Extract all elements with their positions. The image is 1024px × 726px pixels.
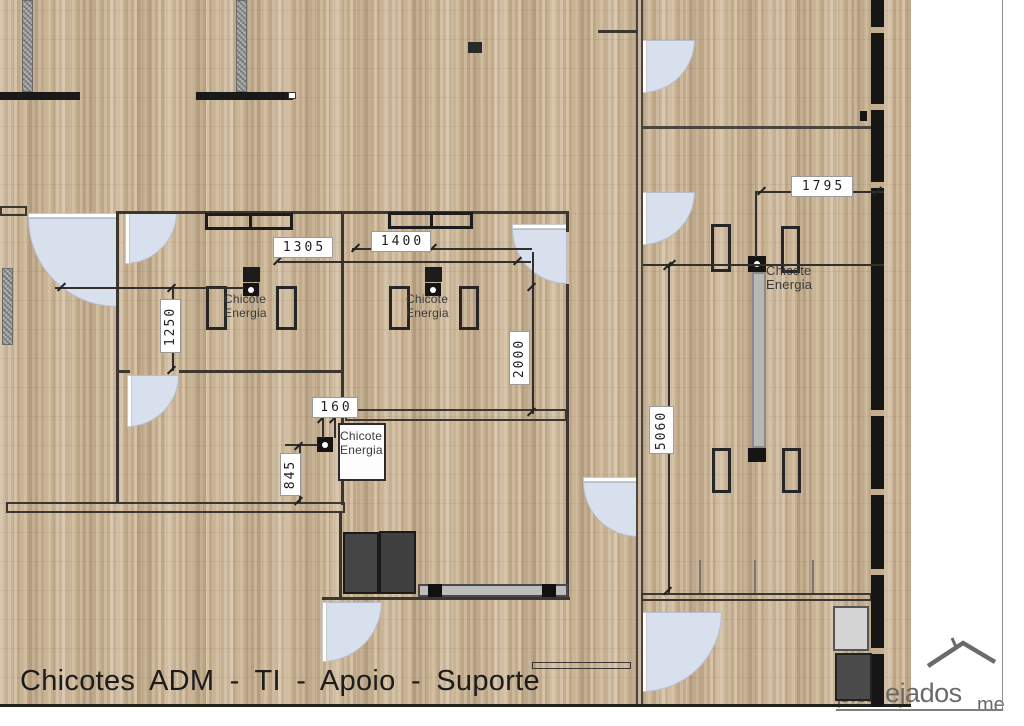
power-label-line: Chicote bbox=[406, 292, 449, 306]
watermark-underline bbox=[836, 709, 1003, 711]
cabinet-dark bbox=[835, 653, 872, 701]
dimension-line bbox=[55, 287, 244, 289]
junction-box bbox=[425, 267, 442, 282]
wall-top-stub bbox=[598, 30, 638, 33]
dimension-value: 1305 bbox=[280, 240, 326, 255]
wall-divider-line-a bbox=[636, 0, 638, 707]
floor-bottom-edge bbox=[0, 704, 911, 707]
dimension-label: 2000 bbox=[509, 331, 530, 385]
counter-outlet bbox=[428, 584, 442, 597]
dimension-value: 1400 bbox=[378, 234, 424, 249]
column bbox=[22, 0, 33, 92]
dimension-line bbox=[532, 252, 534, 414]
dimension-line bbox=[643, 264, 884, 266]
wall-room1-bottom-a bbox=[116, 370, 130, 373]
appliance bbox=[833, 606, 869, 651]
wall-stub-left bbox=[0, 206, 27, 216]
wardrobe bbox=[379, 531, 416, 594]
wall-marker bbox=[860, 111, 867, 121]
dimension-label: 1305 bbox=[273, 237, 333, 258]
dimension-label: 845 bbox=[280, 453, 301, 496]
power-label-line: Energia bbox=[340, 443, 383, 457]
desk bbox=[459, 286, 479, 330]
power-label: ChicoteEnergia bbox=[340, 429, 383, 457]
dimension-label: 1250 bbox=[160, 299, 181, 353]
chimney-icon bbox=[952, 638, 956, 647]
power-label: ChicoteEnergia bbox=[406, 292, 449, 320]
power-label-line: Chicote bbox=[766, 264, 812, 278]
power-label: ChicoteEnergia bbox=[766, 264, 812, 292]
power-label-line: Energia bbox=[766, 278, 812, 292]
wall-bar-top-mid bbox=[196, 92, 293, 100]
window-mullion bbox=[699, 560, 701, 594]
door-leaf bbox=[127, 375, 132, 427]
door-leaf bbox=[583, 477, 638, 482]
dimension-label: 160 bbox=[312, 397, 358, 418]
power-label-line: Chicote bbox=[340, 429, 383, 443]
outlet-dot bbox=[322, 442, 328, 448]
house-roof-icon bbox=[928, 643, 995, 666]
desk bbox=[782, 448, 801, 493]
wall-black-gap bbox=[871, 648, 884, 654]
page-border-right bbox=[1002, 0, 1003, 711]
power-label-line: Energia bbox=[224, 306, 267, 320]
door-leaf bbox=[125, 212, 130, 264]
dimension-value: 5060 bbox=[654, 410, 669, 449]
counter-low bbox=[532, 662, 631, 669]
floor-marker bbox=[468, 42, 482, 53]
wall-black-gap bbox=[871, 27, 884, 33]
power-label: ChicoteEnergia bbox=[224, 292, 267, 320]
wall-right-corridor bbox=[641, 126, 872, 129]
wall-bar-top-left bbox=[0, 92, 80, 100]
wall-black-gap bbox=[871, 489, 884, 495]
tray-endcap bbox=[748, 448, 766, 462]
window-mullion bbox=[812, 560, 814, 594]
wall-black-gap bbox=[871, 410, 884, 416]
wall-right-bottom bbox=[641, 593, 872, 601]
dimension-value: 845 bbox=[283, 460, 298, 489]
dimension-line bbox=[278, 261, 531, 263]
column bbox=[236, 0, 247, 92]
dimension-value: 2000 bbox=[512, 338, 527, 377]
dimension-line bbox=[755, 191, 757, 257]
cable-tray bbox=[752, 272, 766, 448]
dimension-value: 160 bbox=[317, 400, 352, 415]
watermark-suffix: me bbox=[977, 694, 1005, 716]
wall-room1-left bbox=[116, 211, 119, 503]
dimension-value: 1250 bbox=[163, 306, 178, 345]
desk bbox=[712, 448, 731, 493]
power-label-line: Chicote bbox=[224, 292, 267, 306]
junction-box bbox=[243, 267, 260, 282]
wall-room2-right-b bbox=[566, 284, 569, 600]
power-label-line: Energia bbox=[406, 306, 449, 320]
cabinet-divider bbox=[430, 212, 433, 229]
dimension-label: 5060 bbox=[649, 406, 674, 454]
wardrobe bbox=[343, 532, 379, 594]
dimension-label: 1400 bbox=[371, 231, 431, 252]
door-leaf bbox=[322, 602, 327, 662]
power-outlet bbox=[317, 437, 333, 452]
wall-storage-bottom bbox=[322, 597, 570, 600]
counter-outlet bbox=[542, 584, 556, 597]
window-mullion bbox=[754, 560, 756, 594]
wall-black-gap bbox=[871, 569, 884, 575]
desk bbox=[276, 286, 297, 330]
door-leaf bbox=[28, 213, 117, 218]
floor-plan: Chicotes ADM - TI - Apoio - Suporte plan… bbox=[0, 0, 1024, 726]
wall-storage-left bbox=[339, 513, 342, 600]
door-leaf bbox=[512, 224, 567, 229]
column bbox=[2, 268, 13, 345]
wall-black-gap bbox=[871, 104, 884, 110]
wall-cap bbox=[288, 92, 296, 99]
wall-room2-right-a bbox=[566, 211, 569, 232]
dimension-value: 1795 bbox=[799, 179, 845, 194]
dimension-label: 1795 bbox=[791, 176, 853, 197]
wall-room1-bottom-b bbox=[179, 370, 343, 373]
cabinet-divider bbox=[249, 213, 252, 230]
plan-title: Chicotes ADM - TI - Apoio - Suporte bbox=[20, 665, 580, 703]
